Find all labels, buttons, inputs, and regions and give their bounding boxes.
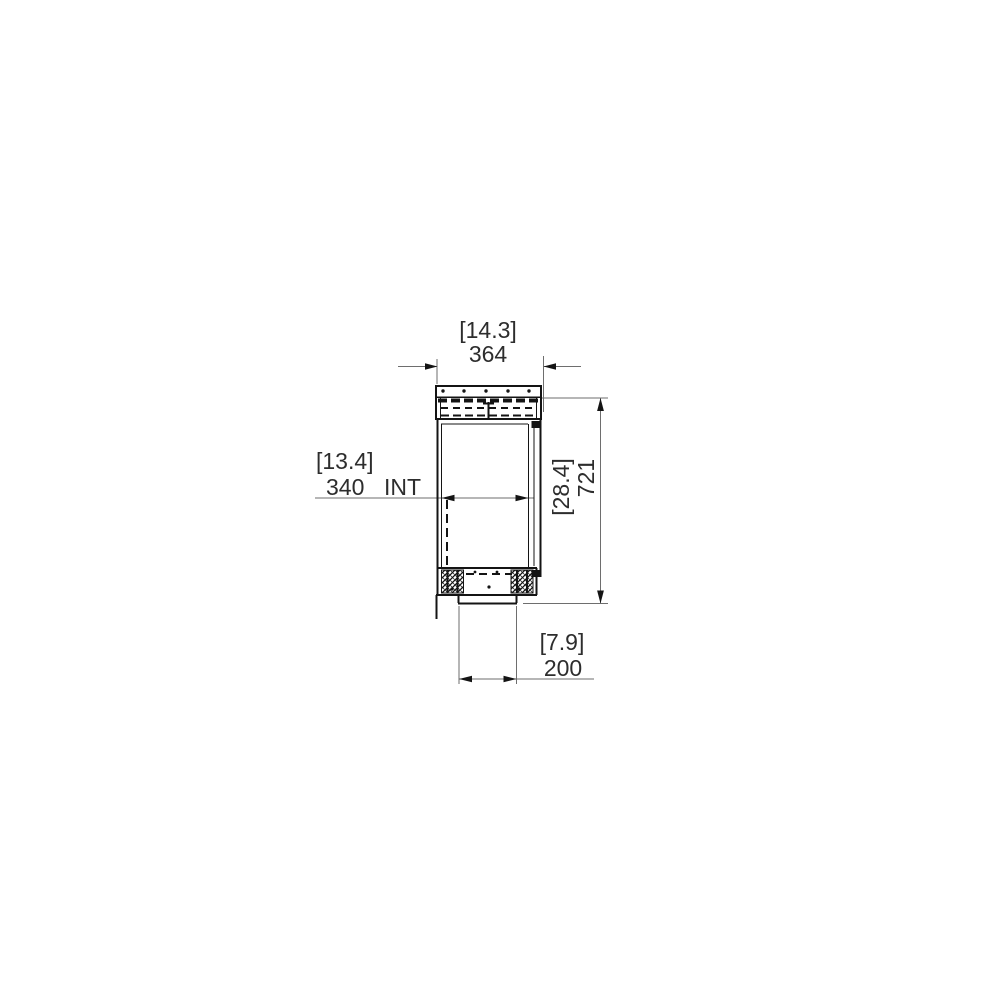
dim-top-mm-label: 364 xyxy=(469,341,508,367)
rivet-dot xyxy=(487,585,490,588)
arrow-bottom-left xyxy=(459,676,472,682)
arrow-bottom-right xyxy=(504,676,517,682)
dim-bottom-mm-label: 200 xyxy=(544,655,582,681)
dim-internal-inches-label: [13.4] xyxy=(316,448,374,474)
glass-top-cap xyxy=(532,421,542,428)
rivet-dot xyxy=(496,571,499,574)
rivet-dot xyxy=(462,389,465,392)
arrow-height-top xyxy=(597,398,604,411)
drawing-canvas: [14.3] 364 [13.4] 340 INT [28.4] 721 [7.… xyxy=(0,0,1000,1000)
rivet-dot xyxy=(527,389,530,392)
arrow-height-bottom xyxy=(597,591,604,604)
rivet-dot xyxy=(484,389,487,392)
technical-drawing-svg: [14.3] 364 [13.4] 340 INT [28.4] 721 [7.… xyxy=(0,0,1000,1000)
arrow-internal-right xyxy=(516,495,529,501)
dim-internal-mm-label: 340 xyxy=(326,474,364,500)
base-bracket-right xyxy=(511,570,533,593)
rivet-dot xyxy=(506,389,509,392)
rivet-dot xyxy=(450,587,453,590)
rivet-dot xyxy=(517,587,520,590)
rivet-dot xyxy=(474,571,477,574)
bottom-base-assembly xyxy=(436,568,537,619)
dim-internal-suffix-label: INT xyxy=(384,474,421,500)
dim-top-inches-label: [14.3] xyxy=(459,317,517,343)
object-lines xyxy=(436,386,542,619)
rivet-dot xyxy=(441,389,444,392)
dimension-labels: [14.3] 364 [13.4] 340 INT [28.4] 721 [7.… xyxy=(316,317,599,681)
arrow-top-right xyxy=(544,363,557,370)
arrow-top-left xyxy=(425,363,438,370)
dim-height-inches-label: [28.4] xyxy=(548,458,574,516)
top-mounting-assembly xyxy=(436,386,541,419)
dim-height-mm-label: 721 xyxy=(573,459,599,497)
dim-bottom-inches-label: [7.9] xyxy=(540,629,585,655)
